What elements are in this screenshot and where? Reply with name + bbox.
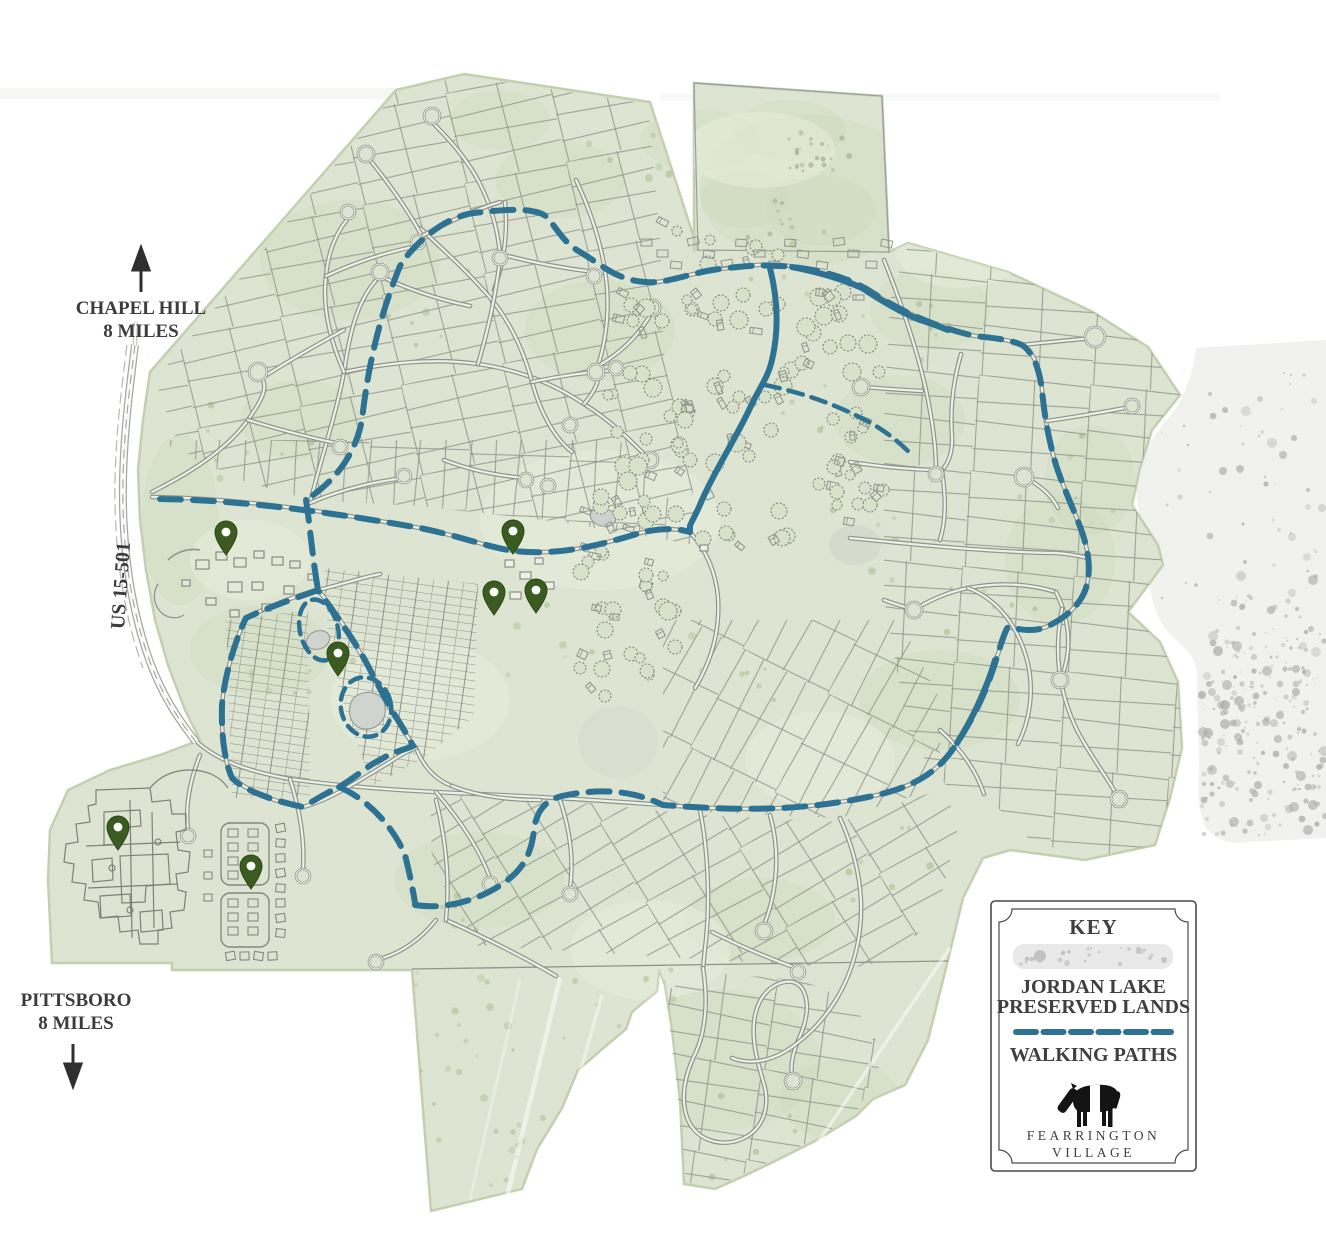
svg-text:KEY: KEY — [1069, 915, 1118, 939]
svg-text:8 MILES: 8 MILES — [103, 321, 179, 342]
svg-text:PRESERVED LANDS: PRESERVED LANDS — [997, 996, 1190, 1018]
svg-text:WALKING PATHS: WALKING PATHS — [1010, 1044, 1178, 1066]
svg-text:8 MILES: 8 MILES — [38, 1013, 114, 1034]
svg-text:CHAPEL HILL: CHAPEL HILL — [76, 298, 206, 319]
svg-text:JORDAN LAKE: JORDAN LAKE — [1021, 976, 1166, 998]
svg-text:PITTSBORO: PITTSBORO — [21, 990, 132, 1011]
svg-text:VILLAGE: VILLAGE — [1052, 1145, 1135, 1160]
svg-text:FEARRINGTON: FEARRINGTON — [1027, 1128, 1161, 1143]
